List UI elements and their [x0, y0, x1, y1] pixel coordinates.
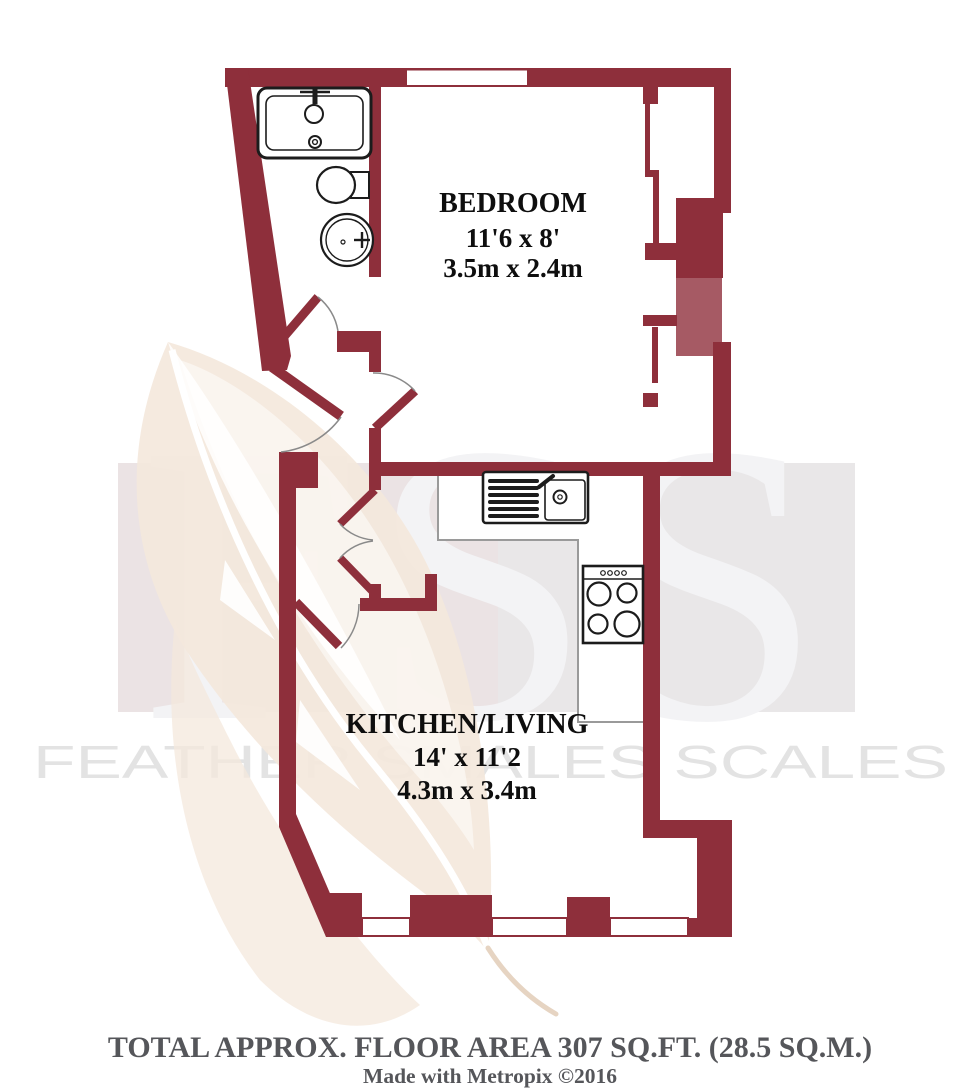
- floorplan-svg: FSS FEATHER SMALES SCALES: [0, 0, 980, 1088]
- kitchen-living-dimensions-imperial: 14' x 11'2: [413, 742, 521, 772]
- kitchen-living-label: KITCHEN/LIVING: [346, 709, 589, 740]
- basin: [321, 214, 373, 266]
- bedroom-dimensions-imperial: 11'6 x 8': [466, 223, 561, 253]
- bedroom-dimensions-metric: 3.5m x 2.4m: [443, 253, 583, 283]
- window-kitchen-3: [610, 918, 688, 936]
- kitchen-living-dimensions-metric: 4.3m x 3.4m: [397, 775, 537, 805]
- window-bedroom-top: [406, 70, 528, 87]
- metropix-credit-text: Made with Metropix ©2016: [363, 1064, 617, 1088]
- bedroom-label: BEDROOM: [439, 188, 587, 219]
- wall-kitchen-left: [279, 488, 296, 816]
- toilet: [317, 167, 369, 203]
- wall-kitchen-right: [643, 476, 660, 838]
- cooker-hob: [583, 566, 643, 643]
- bathtub: [258, 88, 371, 158]
- wall-lobby-spur: [360, 598, 437, 611]
- bath-tap-icon: [305, 105, 323, 123]
- floorplan-page: FSS FEATHER SMALES SCALES: [0, 0, 980, 1088]
- total-floor-area-text: TOTAL APPROX. FLOOR AREA 307 SQ.FT. (28.…: [108, 1031, 872, 1064]
- wall-bedroom-right-top: [714, 87, 731, 213]
- footer: TOTAL APPROX. FLOOR AREA 307 SQ.FT. (28.…: [108, 1031, 872, 1088]
- kitchen-sink: [483, 472, 588, 523]
- chimney-breast: [676, 198, 723, 278]
- window-kitchen-1: [362, 918, 410, 936]
- window-kitchen-2: [492, 918, 567, 936]
- door-bathroom: [282, 297, 338, 339]
- wall-bedroom-right-lower: [713, 342, 731, 476]
